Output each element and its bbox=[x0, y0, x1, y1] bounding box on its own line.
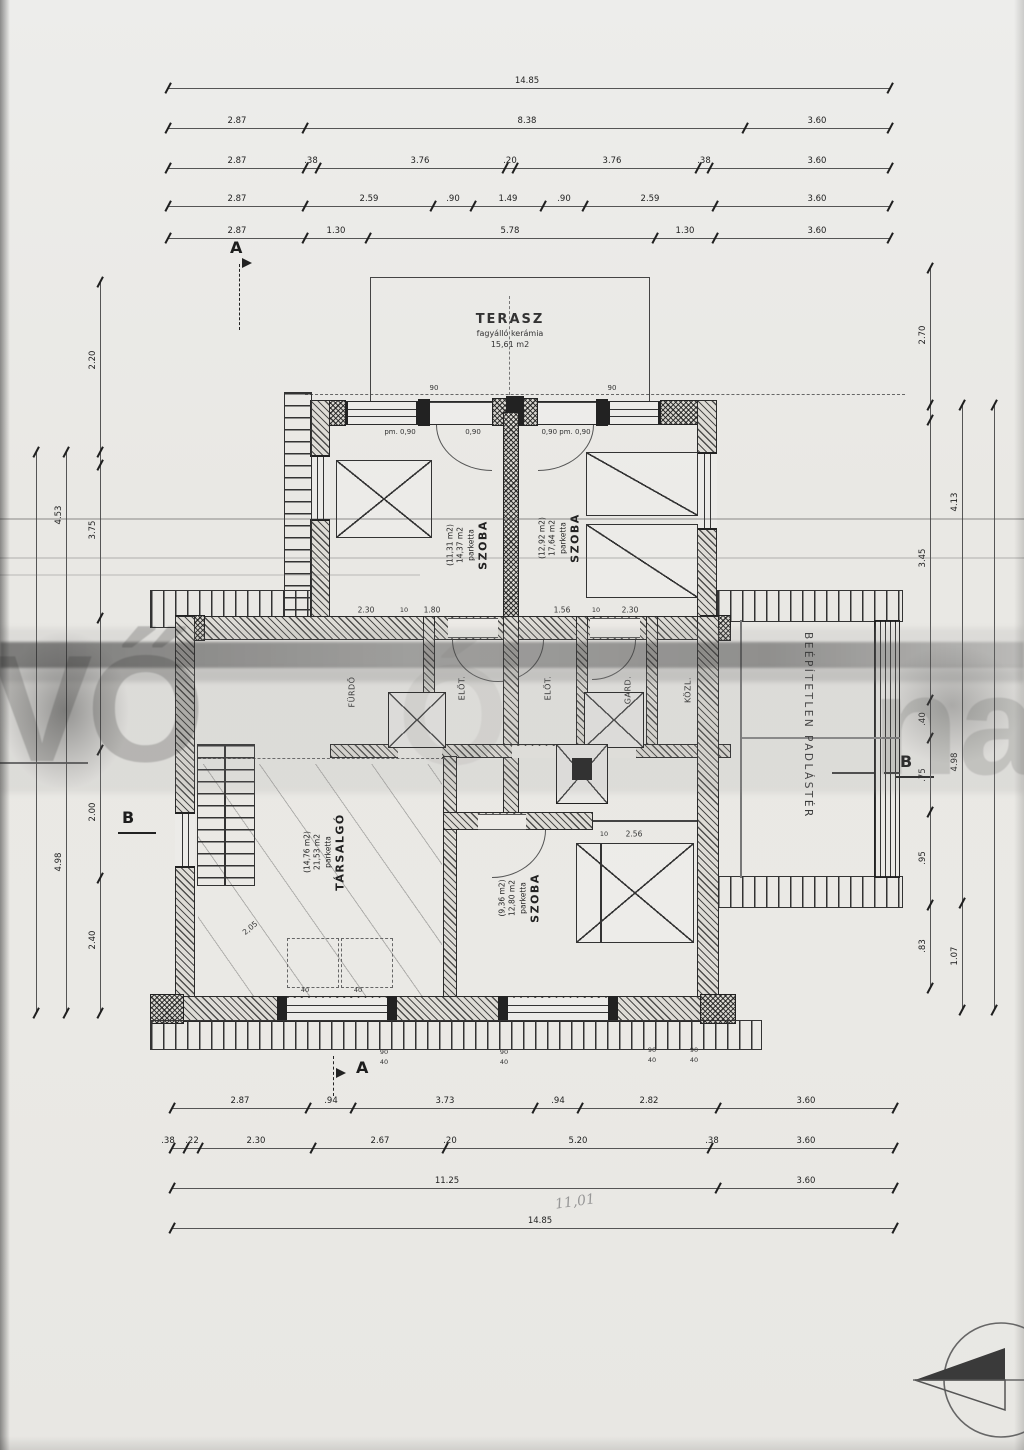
dimension-line bbox=[168, 206, 890, 207]
dim-label: 3.60 bbox=[808, 226, 827, 236]
dim-label: 3.60 bbox=[797, 1176, 816, 1186]
plan-annotation: pm. 0,90 bbox=[384, 428, 415, 436]
eaves-ladder bbox=[150, 1020, 762, 1050]
chimney-flue bbox=[572, 758, 592, 780]
terrace-label: TERASZ fagyálló kerámia 15,61 m2 bbox=[420, 312, 600, 349]
dim-label: .20 bbox=[503, 156, 517, 166]
dim-tick bbox=[32, 1007, 39, 1018]
dimension-line bbox=[172, 1228, 895, 1229]
dim-label: .94 bbox=[324, 1096, 338, 1106]
plan-annotation: 90 bbox=[608, 384, 617, 392]
dim-label: 3.75 bbox=[88, 521, 98, 540]
plan-annotation: 11,01 bbox=[554, 1191, 596, 1212]
dim-label: 1.49 bbox=[499, 194, 518, 204]
section-underline bbox=[118, 832, 156, 834]
door-opening bbox=[590, 618, 640, 638]
room-material: parketta bbox=[323, 836, 332, 868]
plan-annotation: 90 bbox=[500, 1048, 508, 1056]
window-symbol bbox=[697, 452, 717, 530]
room-material: parketta bbox=[466, 529, 475, 561]
dim-label: 2.40 bbox=[88, 931, 98, 950]
dim-label: 1.30 bbox=[327, 226, 346, 236]
plan-annotation: 40 bbox=[380, 1058, 388, 1066]
dim-tick bbox=[926, 982, 933, 993]
door-swing-arc bbox=[592, 640, 636, 680]
dim-label: .38 bbox=[697, 156, 711, 166]
watermark-text: nal bbox=[872, 644, 1024, 808]
wall-segment bbox=[175, 996, 719, 1022]
dim-label: 1.07 bbox=[950, 947, 960, 966]
dim-label: 2.20 bbox=[88, 351, 98, 370]
section-marker-a-bottom: A bbox=[356, 1058, 368, 1077]
section-line bbox=[239, 264, 240, 330]
dim-label: 3.60 bbox=[808, 194, 827, 204]
furniture-dashed bbox=[341, 938, 393, 988]
dim-label: .95 bbox=[918, 851, 928, 865]
stair-ladder bbox=[197, 744, 255, 886]
bed-symbol bbox=[576, 843, 694, 943]
attic-room-label: BEÉPÍTETLEN PADLÁSTÉR bbox=[792, 632, 814, 872]
dim-label: 4.53 bbox=[54, 506, 64, 525]
dim-label: 2.87 bbox=[228, 226, 247, 236]
dim-label: .22 bbox=[185, 1136, 199, 1146]
dimension-line bbox=[172, 1148, 895, 1149]
bed-symbol bbox=[336, 460, 432, 538]
room-name: SZOBA bbox=[569, 513, 583, 563]
bed-symbol bbox=[586, 452, 698, 516]
plan-annotation: GARD. bbox=[624, 676, 633, 704]
plan-annotation: 40 bbox=[690, 1056, 698, 1064]
door-jamb bbox=[608, 996, 618, 1022]
section-dash bbox=[832, 772, 874, 774]
dim-label: 3.76 bbox=[603, 156, 622, 166]
dim-tick bbox=[990, 1004, 997, 1015]
dim-label: 3.60 bbox=[797, 1096, 816, 1106]
dimension-line bbox=[930, 268, 931, 988]
dim-label: 4.98 bbox=[54, 853, 64, 872]
room-area-reduced: (14,76 m2) bbox=[303, 831, 312, 873]
dim-label: 3.60 bbox=[797, 1136, 816, 1146]
window-symbol bbox=[285, 998, 389, 1020]
dim-label: 2.87 bbox=[228, 156, 247, 166]
watermark-text: IVŐ bbox=[0, 622, 199, 797]
dim-label: .94 bbox=[551, 1096, 565, 1106]
dim-label: 2.30 bbox=[247, 1136, 266, 1146]
room-area: 15,61 m2 bbox=[420, 340, 600, 349]
door-jamb bbox=[277, 996, 287, 1022]
dim-label: 5.20 bbox=[569, 1136, 588, 1146]
dim-label: .38 bbox=[705, 1136, 719, 1146]
dimension-line bbox=[168, 168, 890, 169]
dim-label: .20 bbox=[443, 1136, 457, 1146]
dim-label: 3.76 bbox=[411, 156, 430, 166]
watermark-text: Ó bbox=[398, 634, 508, 798]
room-area: 21,53 m2 bbox=[313, 834, 322, 870]
bed-pillow-line bbox=[600, 843, 602, 943]
window-symbol bbox=[175, 812, 195, 868]
door-swing-arc bbox=[436, 425, 492, 471]
room-label-bedroom-down: SZOBA parketta 12,80 m2 (9,36 m2) bbox=[498, 873, 543, 923]
dim-label: 2.87 bbox=[228, 194, 247, 204]
window-symbol bbox=[506, 998, 610, 1020]
section-marker-b-left: B bbox=[122, 808, 134, 827]
north-arrow-icon bbox=[905, 1316, 1024, 1446]
plan-annotation: 40 bbox=[500, 1058, 508, 1066]
scanned-floor-plan-page: TERASZ fagyálló kerámia 15,61 m2 SZOBA p… bbox=[0, 0, 1024, 1450]
dim-label: 2.00 bbox=[88, 803, 98, 822]
dim-label: .38 bbox=[304, 156, 318, 166]
plan-annotation: KÖZL. bbox=[684, 677, 693, 703]
dim-label: 2.59 bbox=[360, 194, 379, 204]
wall-segment bbox=[646, 616, 658, 752]
plan-annotation: 2.30 bbox=[358, 606, 375, 615]
stair-center-line bbox=[224, 744, 226, 886]
stair-ladder bbox=[717, 876, 903, 908]
room-name: SZOBA bbox=[477, 520, 491, 570]
door-opening bbox=[512, 746, 556, 758]
dim-label: 8.38 bbox=[518, 116, 537, 126]
wall-line bbox=[740, 620, 742, 878]
window-symbol bbox=[608, 402, 660, 424]
door-swing-arc bbox=[492, 830, 546, 878]
wall-line bbox=[593, 820, 697, 822]
dim-label: 3.60 bbox=[808, 116, 827, 126]
dim-label: 3.45 bbox=[918, 549, 928, 568]
plan-annotation: 90 bbox=[380, 1048, 388, 1056]
plan-annotation: 1.56 bbox=[554, 606, 571, 615]
plan-annotation: 40 bbox=[301, 986, 309, 994]
door-opening bbox=[478, 814, 526, 830]
plan-annotation: 10 bbox=[400, 606, 408, 614]
door-jamb bbox=[418, 399, 430, 426]
shower-tray-symbol bbox=[584, 692, 644, 748]
dim-label: 2.82 bbox=[640, 1096, 659, 1106]
plan-annotation: 1.80 bbox=[424, 606, 441, 615]
room-area: 17,64 m2 bbox=[548, 520, 557, 556]
scan-edge-shadow bbox=[0, 1436, 1024, 1450]
door-opening bbox=[430, 402, 492, 424]
plan-annotation: 90 bbox=[648, 1046, 656, 1054]
door-opening bbox=[538, 402, 596, 424]
bed-symbol bbox=[586, 524, 698, 598]
plan-annotation: ELŐT. bbox=[544, 676, 553, 701]
dim-tick bbox=[958, 1004, 965, 1015]
dim-label: 2.87 bbox=[228, 116, 247, 126]
door-jamb bbox=[387, 996, 397, 1022]
plan-annotation: 0,90 pm. 0,90 bbox=[541, 428, 590, 436]
window-symbol bbox=[310, 455, 330, 521]
scan-artifact-line bbox=[0, 574, 420, 576]
dim-label: .90 bbox=[557, 194, 571, 204]
room-label-bedroom-left: SZOBA parketta 14,37 m2 (11,31 m2) bbox=[446, 520, 491, 570]
dim-label: 2.59 bbox=[641, 194, 660, 204]
room-label-bedroom-right: SZOBA parketta 17,64 m2 (12,92 m2) bbox=[538, 513, 583, 563]
room-area: 14,37 m2 bbox=[456, 527, 465, 563]
plan-annotation: 0,90 bbox=[465, 428, 481, 436]
dim-label: 4.13 bbox=[950, 493, 960, 512]
stair-ladder bbox=[717, 590, 903, 622]
dim-label: 2.67 bbox=[371, 1136, 390, 1146]
dim-label: 5.78 bbox=[501, 226, 520, 236]
room-material: parketta bbox=[518, 882, 527, 914]
dimension-line bbox=[172, 1188, 895, 1189]
door-jamb bbox=[498, 996, 508, 1022]
plan-annotation: 10 bbox=[600, 830, 608, 838]
dimension-line bbox=[168, 88, 890, 89]
dim-label: 2.87 bbox=[231, 1096, 250, 1106]
dim-tick bbox=[62, 1007, 69, 1018]
dim-label: 11.25 bbox=[435, 1176, 459, 1186]
room-area-reduced: (11,31 m2) bbox=[446, 524, 455, 566]
dimension-line bbox=[168, 128, 890, 129]
plan-annotation: 90 bbox=[690, 1046, 698, 1054]
room-name: SZOBA bbox=[529, 873, 543, 923]
dim-label: 3.60 bbox=[808, 156, 827, 166]
dim-label: 1.30 bbox=[676, 226, 695, 236]
door-jamb bbox=[596, 399, 608, 426]
room-area: 12,80 m2 bbox=[508, 880, 517, 916]
room-area-reduced: (9,36 m2) bbox=[498, 880, 507, 917]
section-marker-a-top: A bbox=[230, 238, 242, 257]
plan-annotation: 40 bbox=[648, 1056, 656, 1064]
furniture-dashed bbox=[287, 938, 339, 988]
window-symbol bbox=[346, 402, 418, 424]
dim-label: 14.85 bbox=[515, 76, 539, 86]
room-name: TERASZ bbox=[420, 312, 600, 327]
room-material: parketta bbox=[558, 522, 567, 554]
plan-annotation: 10 bbox=[592, 606, 600, 614]
wall-segment bbox=[503, 412, 519, 618]
room-material: fagyálló kerámia bbox=[420, 329, 600, 338]
dim-label: .38 bbox=[161, 1136, 175, 1146]
room-label-lounge: TÁRSALGÓ parketta 21,53 m2 (14,76 m2) bbox=[303, 813, 348, 890]
dim-label: 3.73 bbox=[436, 1096, 455, 1106]
dimension-line bbox=[168, 238, 890, 239]
dim-label: .83 bbox=[918, 939, 928, 953]
dim-label: .90 bbox=[446, 194, 460, 204]
dim-label: 14.85 bbox=[528, 1216, 552, 1226]
plan-annotation: 2.30 bbox=[622, 606, 639, 615]
plan-annotation: 90 bbox=[430, 384, 439, 392]
section-arrow-icon bbox=[242, 258, 252, 268]
section-line bbox=[333, 1056, 334, 1096]
room-name: TÁRSALGÓ bbox=[334, 813, 348, 890]
section-arrow-icon bbox=[336, 1068, 346, 1078]
plan-annotation: 2.56 bbox=[626, 830, 643, 839]
dim-label: 2.70 bbox=[918, 326, 928, 345]
wall-segment bbox=[697, 616, 719, 1020]
plan-annotation: 40 bbox=[354, 986, 362, 994]
plan-annotation: FÜRDŐ bbox=[348, 677, 357, 708]
dim-tick bbox=[96, 1007, 103, 1018]
room-area-reduced: (12,92 m2) bbox=[538, 517, 547, 559]
